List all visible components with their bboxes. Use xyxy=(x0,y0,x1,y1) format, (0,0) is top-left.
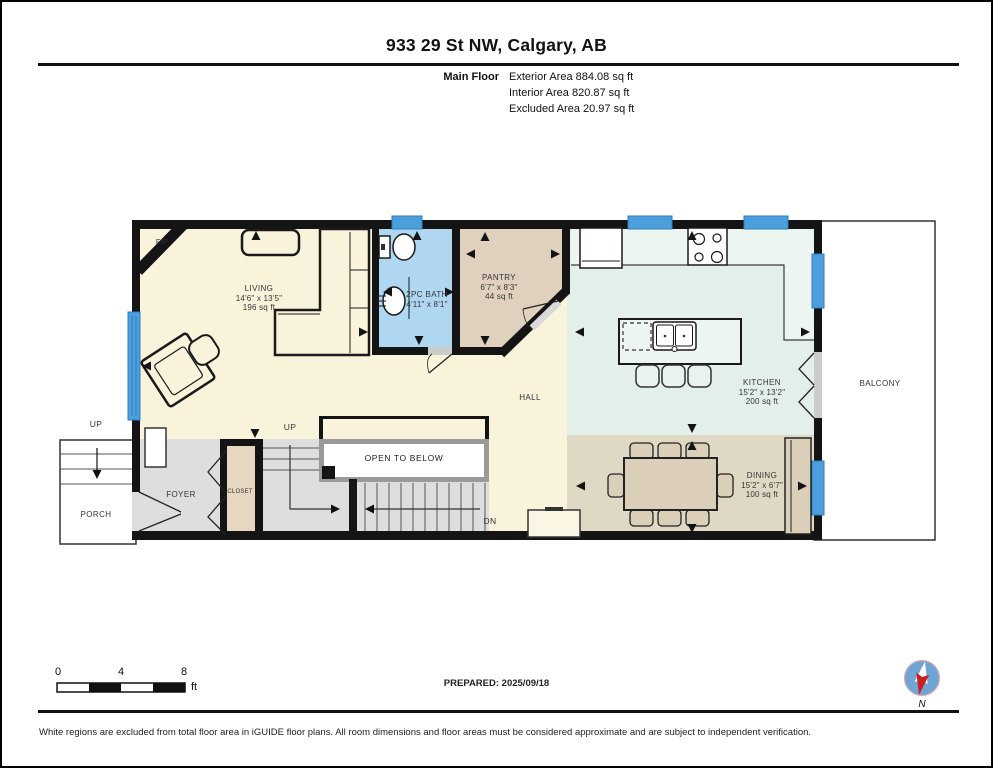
footer-divider xyxy=(38,710,959,713)
fireplace-label: F/P xyxy=(156,237,168,247)
fridge xyxy=(580,228,622,268)
stairs-up-label: UP xyxy=(284,423,296,433)
hall-sideboard xyxy=(528,507,580,537)
bath-pantry-wall xyxy=(452,224,460,355)
island-sink xyxy=(653,322,696,352)
living-window xyxy=(128,312,140,420)
stool xyxy=(662,365,685,387)
stairs-down-label: DN xyxy=(484,517,497,527)
bath-window xyxy=(392,216,422,229)
stove xyxy=(688,228,727,265)
dining-chair xyxy=(658,510,681,526)
room-label-closet: CLOSET xyxy=(227,488,252,498)
dining-chair xyxy=(630,510,653,526)
dining-chair xyxy=(630,443,653,459)
floorplan-page: 933 29 St NW, Calgary, AB Main Floor Ext… xyxy=(0,0,993,768)
compass-north-label: N xyxy=(918,699,925,710)
stool xyxy=(688,365,711,387)
room-label-bath: 2PC BATH 4'11" x 8'1" xyxy=(406,290,448,309)
scale-tick-0: 0 xyxy=(55,666,61,678)
bath-left-wall xyxy=(372,224,379,354)
prepared-date: PREPARED: 2025/09/18 xyxy=(2,678,991,689)
room-label-porch: PORCH xyxy=(81,510,112,520)
kitchen-window-right xyxy=(744,216,788,229)
dining-side-window xyxy=(812,461,824,515)
room-label-pantry: PANTRY 6'7" x 8'3" 44 sq ft xyxy=(480,273,517,302)
scale-tick-4: 4 xyxy=(118,666,124,678)
dining-chair xyxy=(658,443,681,459)
dining-chair xyxy=(686,443,709,459)
dining-table xyxy=(624,458,717,510)
stair-divider-wall xyxy=(349,479,357,540)
toilet xyxy=(379,234,415,260)
entry-threshold xyxy=(132,492,140,533)
kitchen-window-left xyxy=(628,216,672,229)
dining-chair xyxy=(686,510,709,526)
room-label-hall: HALL xyxy=(519,393,541,403)
disclaimer-text: White regions are excluded from total fl… xyxy=(39,727,959,738)
kitchen-side-window xyxy=(812,254,824,308)
porch-area xyxy=(60,440,136,544)
open-to-below-label: OPEN TO BELOW xyxy=(365,454,444,464)
dining-chair xyxy=(608,474,624,497)
porch-up-label: UP xyxy=(90,420,102,430)
room-label-foyer: FOYER xyxy=(166,490,196,500)
room-label-living: LIVING 14'6" x 13'5" 196 sq ft xyxy=(236,284,282,313)
stool xyxy=(636,365,659,387)
ottoman xyxy=(242,230,299,255)
room-label-balcony: BALCONY xyxy=(859,379,900,389)
floorplan-drawing xyxy=(2,2,993,768)
closet-right-wall xyxy=(255,439,263,540)
room-label-kitchen: KITCHEN 15'2" x 13'2" 200 sq ft xyxy=(739,378,785,407)
foyer-console xyxy=(145,428,166,467)
pantry-right-wall xyxy=(562,224,570,294)
scale-tick-8: 8 xyxy=(181,666,187,678)
dining-chair xyxy=(717,474,733,497)
open-to-below-shaft xyxy=(319,416,489,480)
room-label-dining: DINING 15'2" x 6'7" 100 sq ft xyxy=(741,471,783,500)
